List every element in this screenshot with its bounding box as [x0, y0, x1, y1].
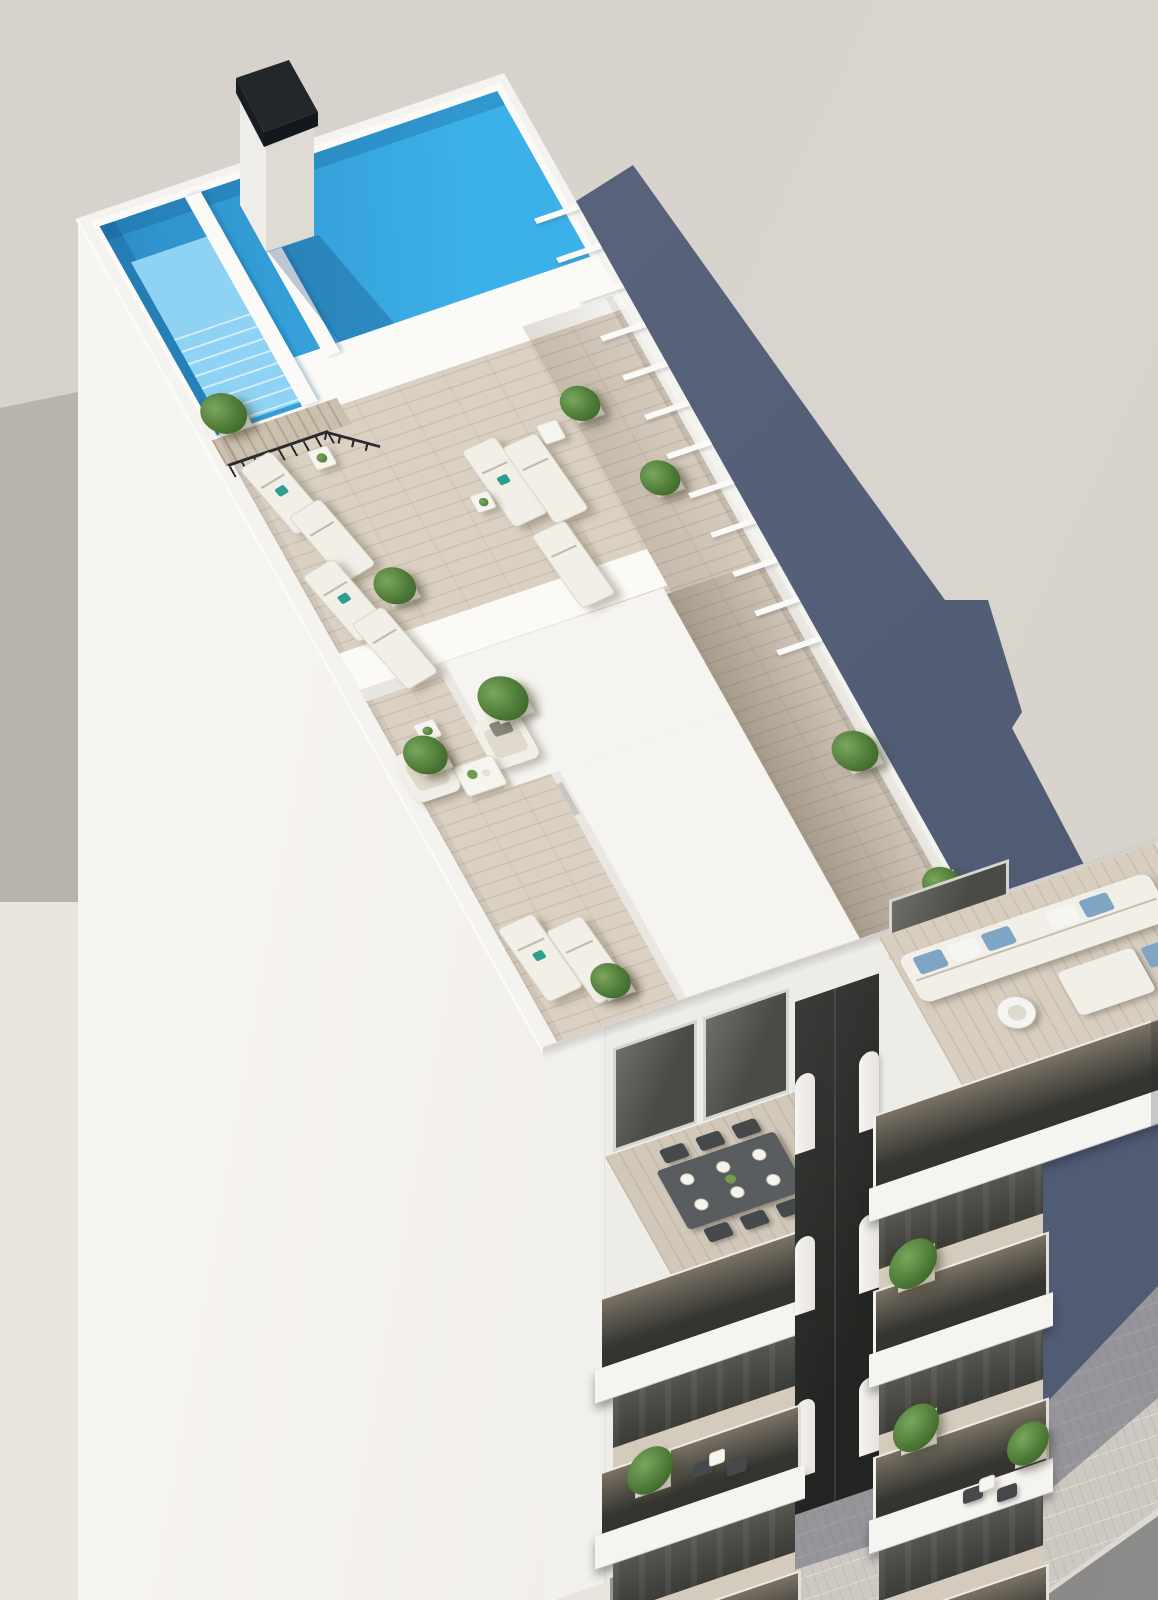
mini-plant	[477, 496, 490, 507]
facade-pier	[795, 1233, 815, 1316]
mini-plant	[315, 452, 329, 464]
facade-left-pier	[543, 1027, 605, 1600]
towel	[531, 950, 546, 962]
towel	[496, 474, 511, 486]
facade-pier	[795, 1070, 815, 1155]
render-canvas	[0, 0, 1158, 1600]
towel	[274, 485, 289, 498]
facade-pier	[859, 1211, 879, 1294]
towel	[337, 592, 352, 605]
balcony-side-edge	[1151, 1016, 1158, 1126]
